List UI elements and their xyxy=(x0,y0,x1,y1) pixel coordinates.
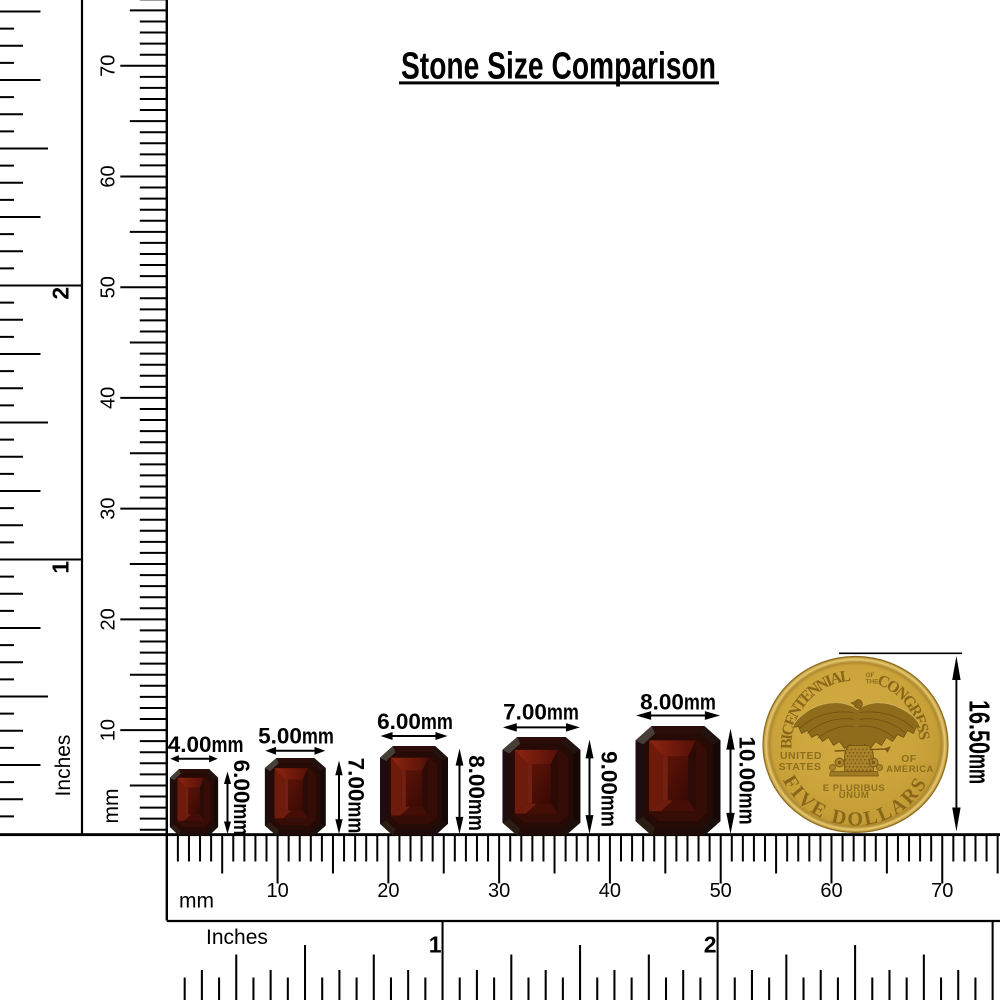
svg-text:Stone Size Comparison: Stone Size Comparison xyxy=(401,46,716,88)
svg-text:16.50mm: 16.50mm xyxy=(963,700,995,784)
svg-text:40: 40 xyxy=(599,880,621,902)
svg-text:mm: mm xyxy=(100,789,123,824)
svg-text:30: 30 xyxy=(98,498,120,520)
svg-text:30: 30 xyxy=(488,880,510,902)
svg-text:50: 50 xyxy=(98,276,120,298)
svg-text:40: 40 xyxy=(98,387,120,409)
svg-text:8.00mm: 8.00mm xyxy=(640,690,716,715)
svg-text:9.00mm: 9.00mm xyxy=(596,751,621,827)
svg-text:STATES: STATES xyxy=(779,761,822,773)
svg-text:mm: mm xyxy=(179,890,214,913)
svg-text:20: 20 xyxy=(377,880,399,902)
svg-text:2: 2 xyxy=(704,932,717,958)
svg-text:60: 60 xyxy=(98,165,120,187)
svg-text:4.00mm: 4.00mm xyxy=(168,732,244,757)
svg-text:10: 10 xyxy=(266,880,288,902)
svg-text:AMERICA: AMERICA xyxy=(886,764,934,775)
svg-text:2: 2 xyxy=(48,287,74,300)
svg-text:1: 1 xyxy=(48,561,74,574)
svg-text:Inches: Inches xyxy=(52,735,75,797)
svg-text:70: 70 xyxy=(98,55,120,77)
svg-text:7.00mm: 7.00mm xyxy=(344,758,369,834)
svg-text:6.00mm: 6.00mm xyxy=(377,709,453,734)
svg-text:10: 10 xyxy=(98,719,120,741)
svg-text:10.00mm: 10.00mm xyxy=(735,736,760,824)
svg-text:70: 70 xyxy=(931,880,953,902)
svg-text:20: 20 xyxy=(98,608,120,630)
svg-text:50: 50 xyxy=(710,880,732,902)
svg-text:UNUM: UNUM xyxy=(839,790,870,801)
svg-text:5.00mm: 5.00mm xyxy=(258,724,334,749)
svg-text:Inches: Inches xyxy=(206,926,268,949)
svg-text:60: 60 xyxy=(820,880,842,902)
svg-text:8.00mm: 8.00mm xyxy=(464,755,489,831)
svg-text:1: 1 xyxy=(429,932,442,958)
svg-text:6.00mm: 6.00mm xyxy=(229,760,254,836)
svg-text:7.00mm: 7.00mm xyxy=(503,700,579,725)
